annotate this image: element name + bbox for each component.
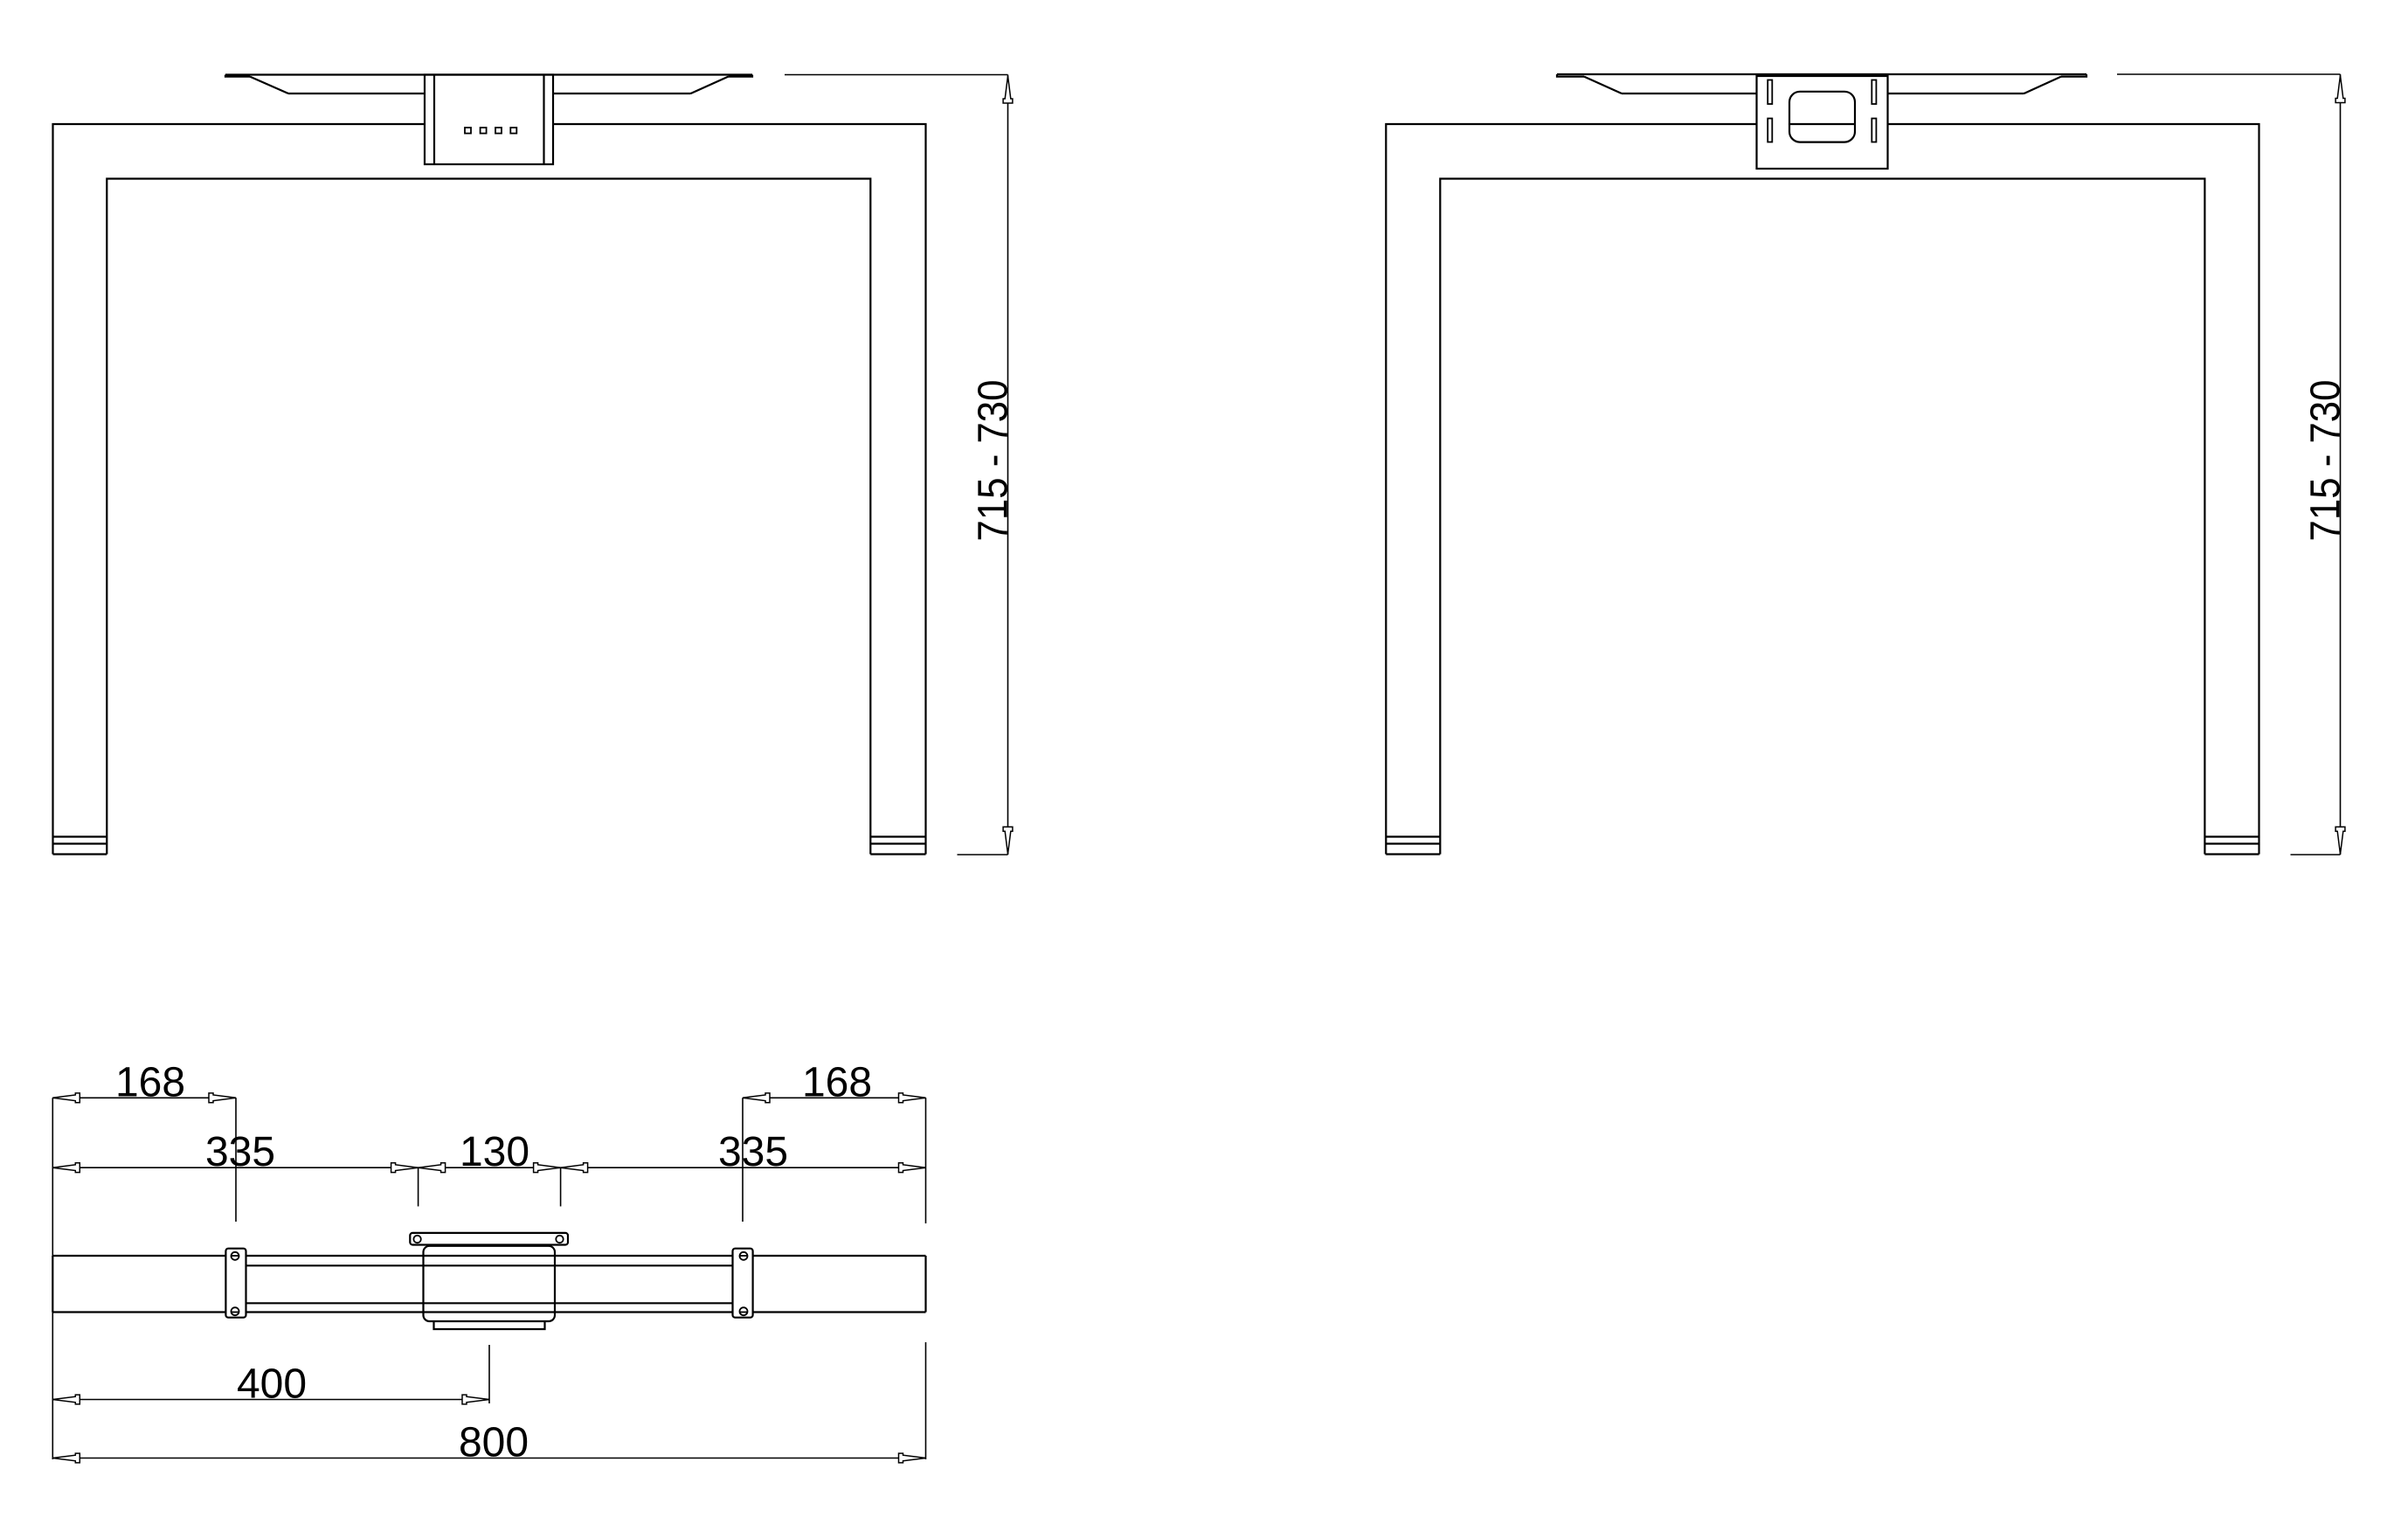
svg-text:715 - 730: 715 - 730 xyxy=(969,380,1016,542)
svg-text:335: 335 xyxy=(718,1129,788,1175)
svg-text:130: 130 xyxy=(460,1129,529,1175)
svg-text:168: 168 xyxy=(115,1059,185,1105)
svg-text:715 - 730: 715 - 730 xyxy=(2301,380,2349,542)
svg-text:335: 335 xyxy=(205,1129,275,1175)
svg-text:168: 168 xyxy=(802,1059,872,1105)
svg-text:800: 800 xyxy=(459,1420,529,1466)
svg-text:400: 400 xyxy=(237,1361,307,1408)
